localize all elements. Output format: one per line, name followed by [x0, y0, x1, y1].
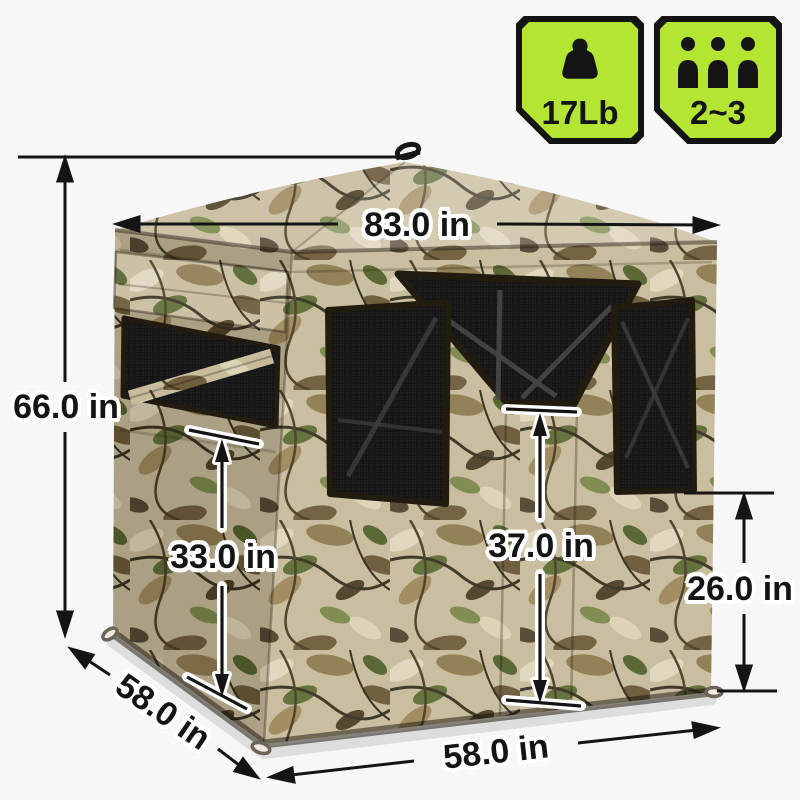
product-spec-image: { "page": { "background": "#f7f7f7" }, "… [0, 0, 800, 800]
capacity-badge-content: 2~3 [654, 16, 782, 144]
weight-badge-content: 17Lb [516, 16, 644, 144]
capacity-badge: 2~3 [654, 16, 782, 144]
capacity-badge-label: 2~3 [690, 96, 746, 129]
weight-icon [551, 34, 609, 90]
stage: 83.0 in 66.0 in 33.0 in 37.0 in 26.0 in … [0, 0, 800, 800]
weight-badge: 17Lb [516, 16, 644, 144]
left-front-mesh-window [328, 302, 448, 504]
right-front-mesh-window [614, 300, 694, 492]
weight-badge-label: 17Lb [541, 96, 618, 129]
apex-tie-loop [396, 142, 421, 160]
dimension-label-total-height: 66.0 in [13, 390, 119, 424]
dimension-label-right-window-height: 26.0 in [687, 572, 793, 606]
dimension-label-top-width: 83.0 in [364, 208, 470, 242]
people-icon [672, 34, 764, 90]
dimension-label-left-window-height: 33.0 in [170, 540, 276, 574]
dimension-label-center-window-height: 37.0 in [488, 529, 594, 563]
